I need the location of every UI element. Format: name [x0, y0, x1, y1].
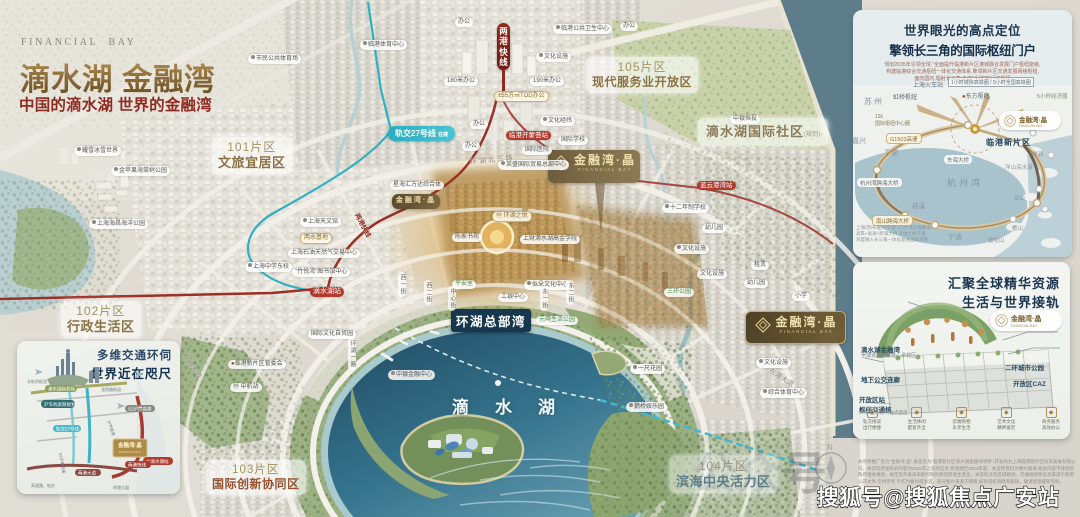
svg-text:N: N	[827, 443, 833, 452]
svg-text:S2沪芦高速: S2沪芦高速	[128, 406, 152, 413]
svg-text:FINANCIAL BAY: FINANCIAL BAY	[119, 450, 141, 454]
svg-text:两港大道: 两港大道	[78, 470, 96, 477]
svg-text:龙阳路枢纽: 龙阳路枢纽	[101, 386, 121, 392]
svg-text:浦东国际机场→: 浦东国际机场→	[48, 386, 80, 393]
svg-text:申港大道: 申港大道	[113, 484, 129, 490]
svg-text:两港快线: 两港快线	[128, 462, 146, 469]
svg-text:S3沪奉高速: S3沪奉高速	[58, 452, 68, 474]
svg-text:轨交27号线: 轨交27号线	[56, 426, 80, 433]
svg-text:沪乍杭高铁规划: 沪乍杭高铁规划	[44, 401, 76, 408]
svg-text:Ⓜ虹桥枢纽: Ⓜ虹桥枢纽	[27, 378, 47, 384]
svg-text:高速路、轨交: 高速路、轨交	[31, 482, 55, 488]
svg-text:金融湾·晶: 金融湾·晶	[117, 441, 142, 449]
svg-text:沪芦高速: 沪芦高速	[106, 419, 117, 436]
